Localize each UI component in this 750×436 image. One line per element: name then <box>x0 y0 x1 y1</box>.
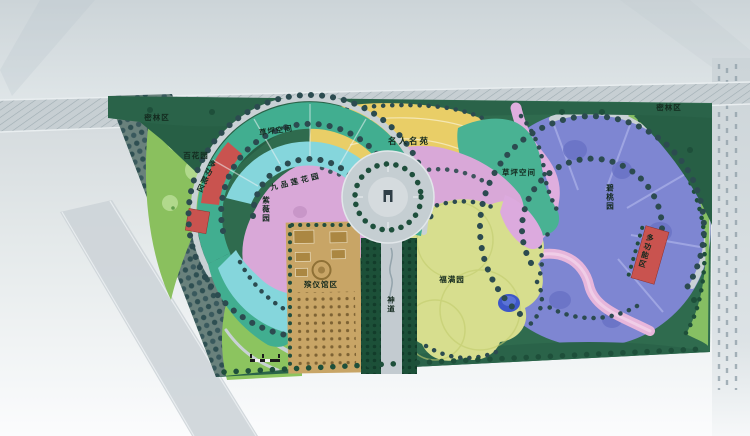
hedge-left <box>361 238 381 374</box>
central-plaza <box>342 151 434 243</box>
label-fuman-garden: 福满园 <box>438 274 465 284</box>
label-forest-left: 密林区 <box>144 112 170 122</box>
label-spirit-way: 神道 <box>386 295 395 314</box>
master-plan-svg: 密林区 密林区 百花园 草坪空间 多功能区 紫薇园 九品莲花园 名人名苑 草坪空… <box>0 0 750 436</box>
park-master-plan: 密林区 密林区 百花园 草坪空间 多功能区 紫薇园 九品莲花园 名人名苑 草坪空… <box>0 0 750 436</box>
label-ziwei-garden: 紫薇园 <box>261 195 270 223</box>
label-bitao-garden: 碧桃园 <box>605 183 614 211</box>
tree-grid <box>293 291 356 368</box>
label-celebrity-garden: 名人名苑 <box>388 136 430 147</box>
zone-funeral-hall <box>286 221 363 373</box>
label-funeral-hall: 殡仪馆区 <box>304 279 338 289</box>
label-flower-garden: 百花园 <box>183 150 209 160</box>
hedge-right <box>402 238 417 374</box>
label-forest-right: 密林区 <box>656 102 682 112</box>
right-road <box>712 58 750 436</box>
label-lawn-right: 草坪空间 <box>502 167 536 177</box>
monument-door <box>386 195 390 202</box>
